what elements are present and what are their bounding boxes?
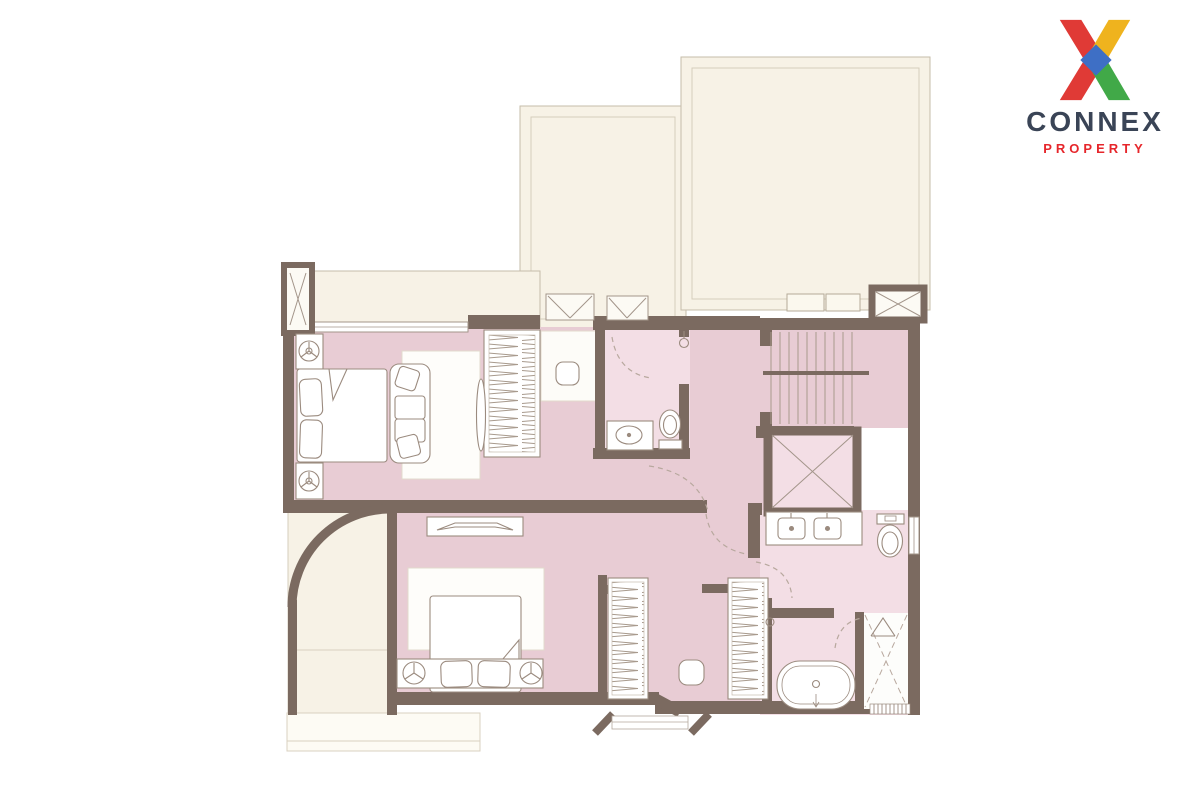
void-by-elevator — [855, 428, 908, 508]
ottoman — [679, 660, 704, 685]
duct-shaft-topleft — [284, 265, 312, 333]
elevator — [768, 431, 857, 512]
window-sill — [612, 716, 688, 729]
lower-ledge — [287, 713, 480, 751]
brand-tagline: PROPERTY — [1043, 141, 1147, 156]
connex-x-icon — [1044, 16, 1146, 104]
brand-logo: CONNEX PROPERTY — [1010, 16, 1180, 156]
toilet-tank — [877, 514, 904, 524]
pillow — [441, 660, 473, 687]
toilet-bowl — [878, 525, 903, 557]
toilet-bowl — [660, 410, 681, 438]
open-area-right-top — [681, 57, 930, 311]
planter — [787, 294, 824, 311]
floor-plan-canvas: CONNEX PROPERTY — [0, 0, 1200, 800]
mirror — [477, 379, 486, 451]
pillow — [299, 378, 323, 416]
pillow — [299, 420, 322, 459]
window-bedroom-upper — [294, 322, 468, 332]
pillow — [478, 660, 511, 687]
sofa-pillow — [396, 434, 421, 459]
planter — [826, 294, 860, 311]
duct-shaft-topright — [872, 288, 924, 320]
brand-name: CONNEX — [1026, 106, 1164, 138]
dressing-stool — [556, 362, 579, 385]
toilet-tank — [659, 440, 682, 449]
window-bath-master — [909, 517, 919, 554]
open-area-left-top — [520, 106, 686, 330]
